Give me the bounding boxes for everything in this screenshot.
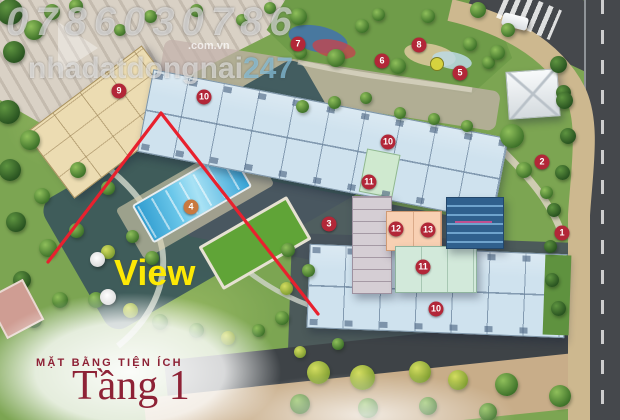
watermark-phone: 0786030786 — [6, 0, 298, 45]
watermark-site-name: nhadatdongnai247 — [28, 52, 293, 86]
view-label: View — [114, 252, 195, 294]
site-plan-image: 91076852110113121341110 View MẶT BẰNG TI… — [0, 0, 620, 420]
watermark-site-suffix: 247 — [243, 52, 293, 85]
watermark-site-text: nhadatdongnai — [28, 52, 243, 85]
watermark-domain: .com.vn — [188, 40, 230, 52]
plan-title: Tầng 1 — [72, 362, 190, 410]
